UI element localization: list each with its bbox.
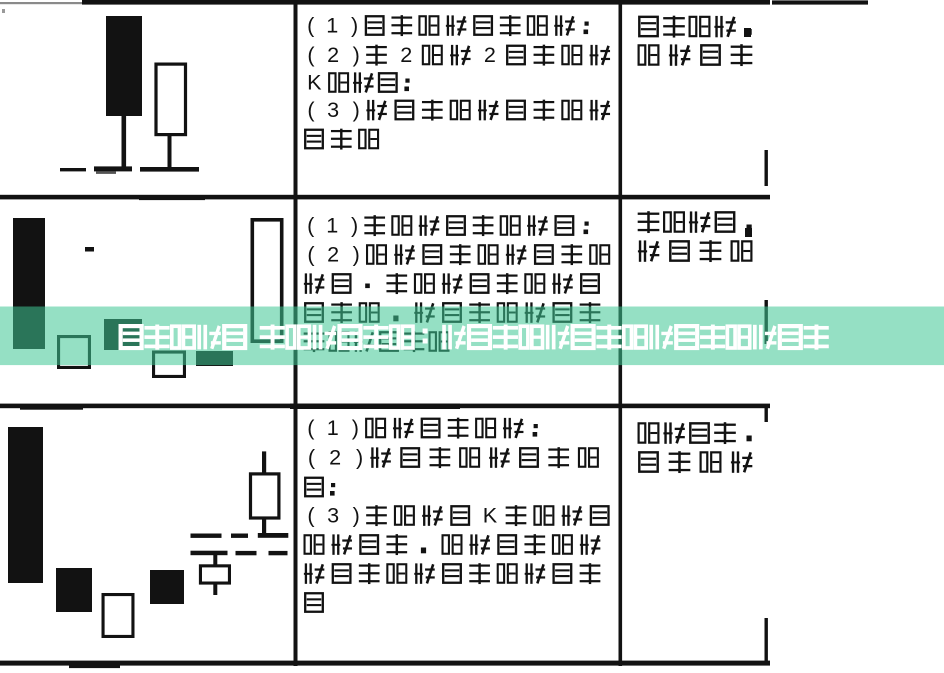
svg-text:): ) bbox=[353, 97, 360, 122]
svg-text:(: ( bbox=[307, 503, 315, 528]
svg-text:3: 3 bbox=[327, 97, 339, 122]
svg-text:(: ( bbox=[307, 42, 315, 67]
svg-text:): ) bbox=[353, 42, 360, 67]
svg-text:2: 2 bbox=[329, 445, 341, 470]
svg-text:(: ( bbox=[307, 97, 315, 122]
svg-text:): ) bbox=[356, 445, 363, 470]
svg-text:): ) bbox=[353, 503, 360, 528]
svg-text:1: 1 bbox=[326, 13, 338, 38]
svg-text:1: 1 bbox=[327, 415, 339, 440]
svg-text:3: 3 bbox=[327, 503, 339, 528]
svg-text:2: 2 bbox=[484, 42, 496, 67]
svg-text:2: 2 bbox=[327, 42, 339, 67]
svg-text:(: ( bbox=[307, 415, 315, 440]
svg-text:K: K bbox=[307, 70, 322, 95]
svg-text:K: K bbox=[483, 503, 498, 528]
svg-text:1: 1 bbox=[326, 213, 338, 238]
svg-text:): ) bbox=[353, 242, 360, 267]
svg-text:2: 2 bbox=[400, 42, 412, 67]
svg-text:(: ( bbox=[308, 445, 316, 470]
svg-text:(: ( bbox=[307, 13, 315, 38]
svg-text:): ) bbox=[351, 213, 358, 238]
svg-text:2: 2 bbox=[327, 242, 339, 267]
svg-text:(: ( bbox=[307, 213, 315, 238]
svg-text:): ) bbox=[351, 13, 358, 38]
svg-text:): ) bbox=[352, 415, 359, 440]
svg-text:(: ( bbox=[307, 242, 315, 267]
